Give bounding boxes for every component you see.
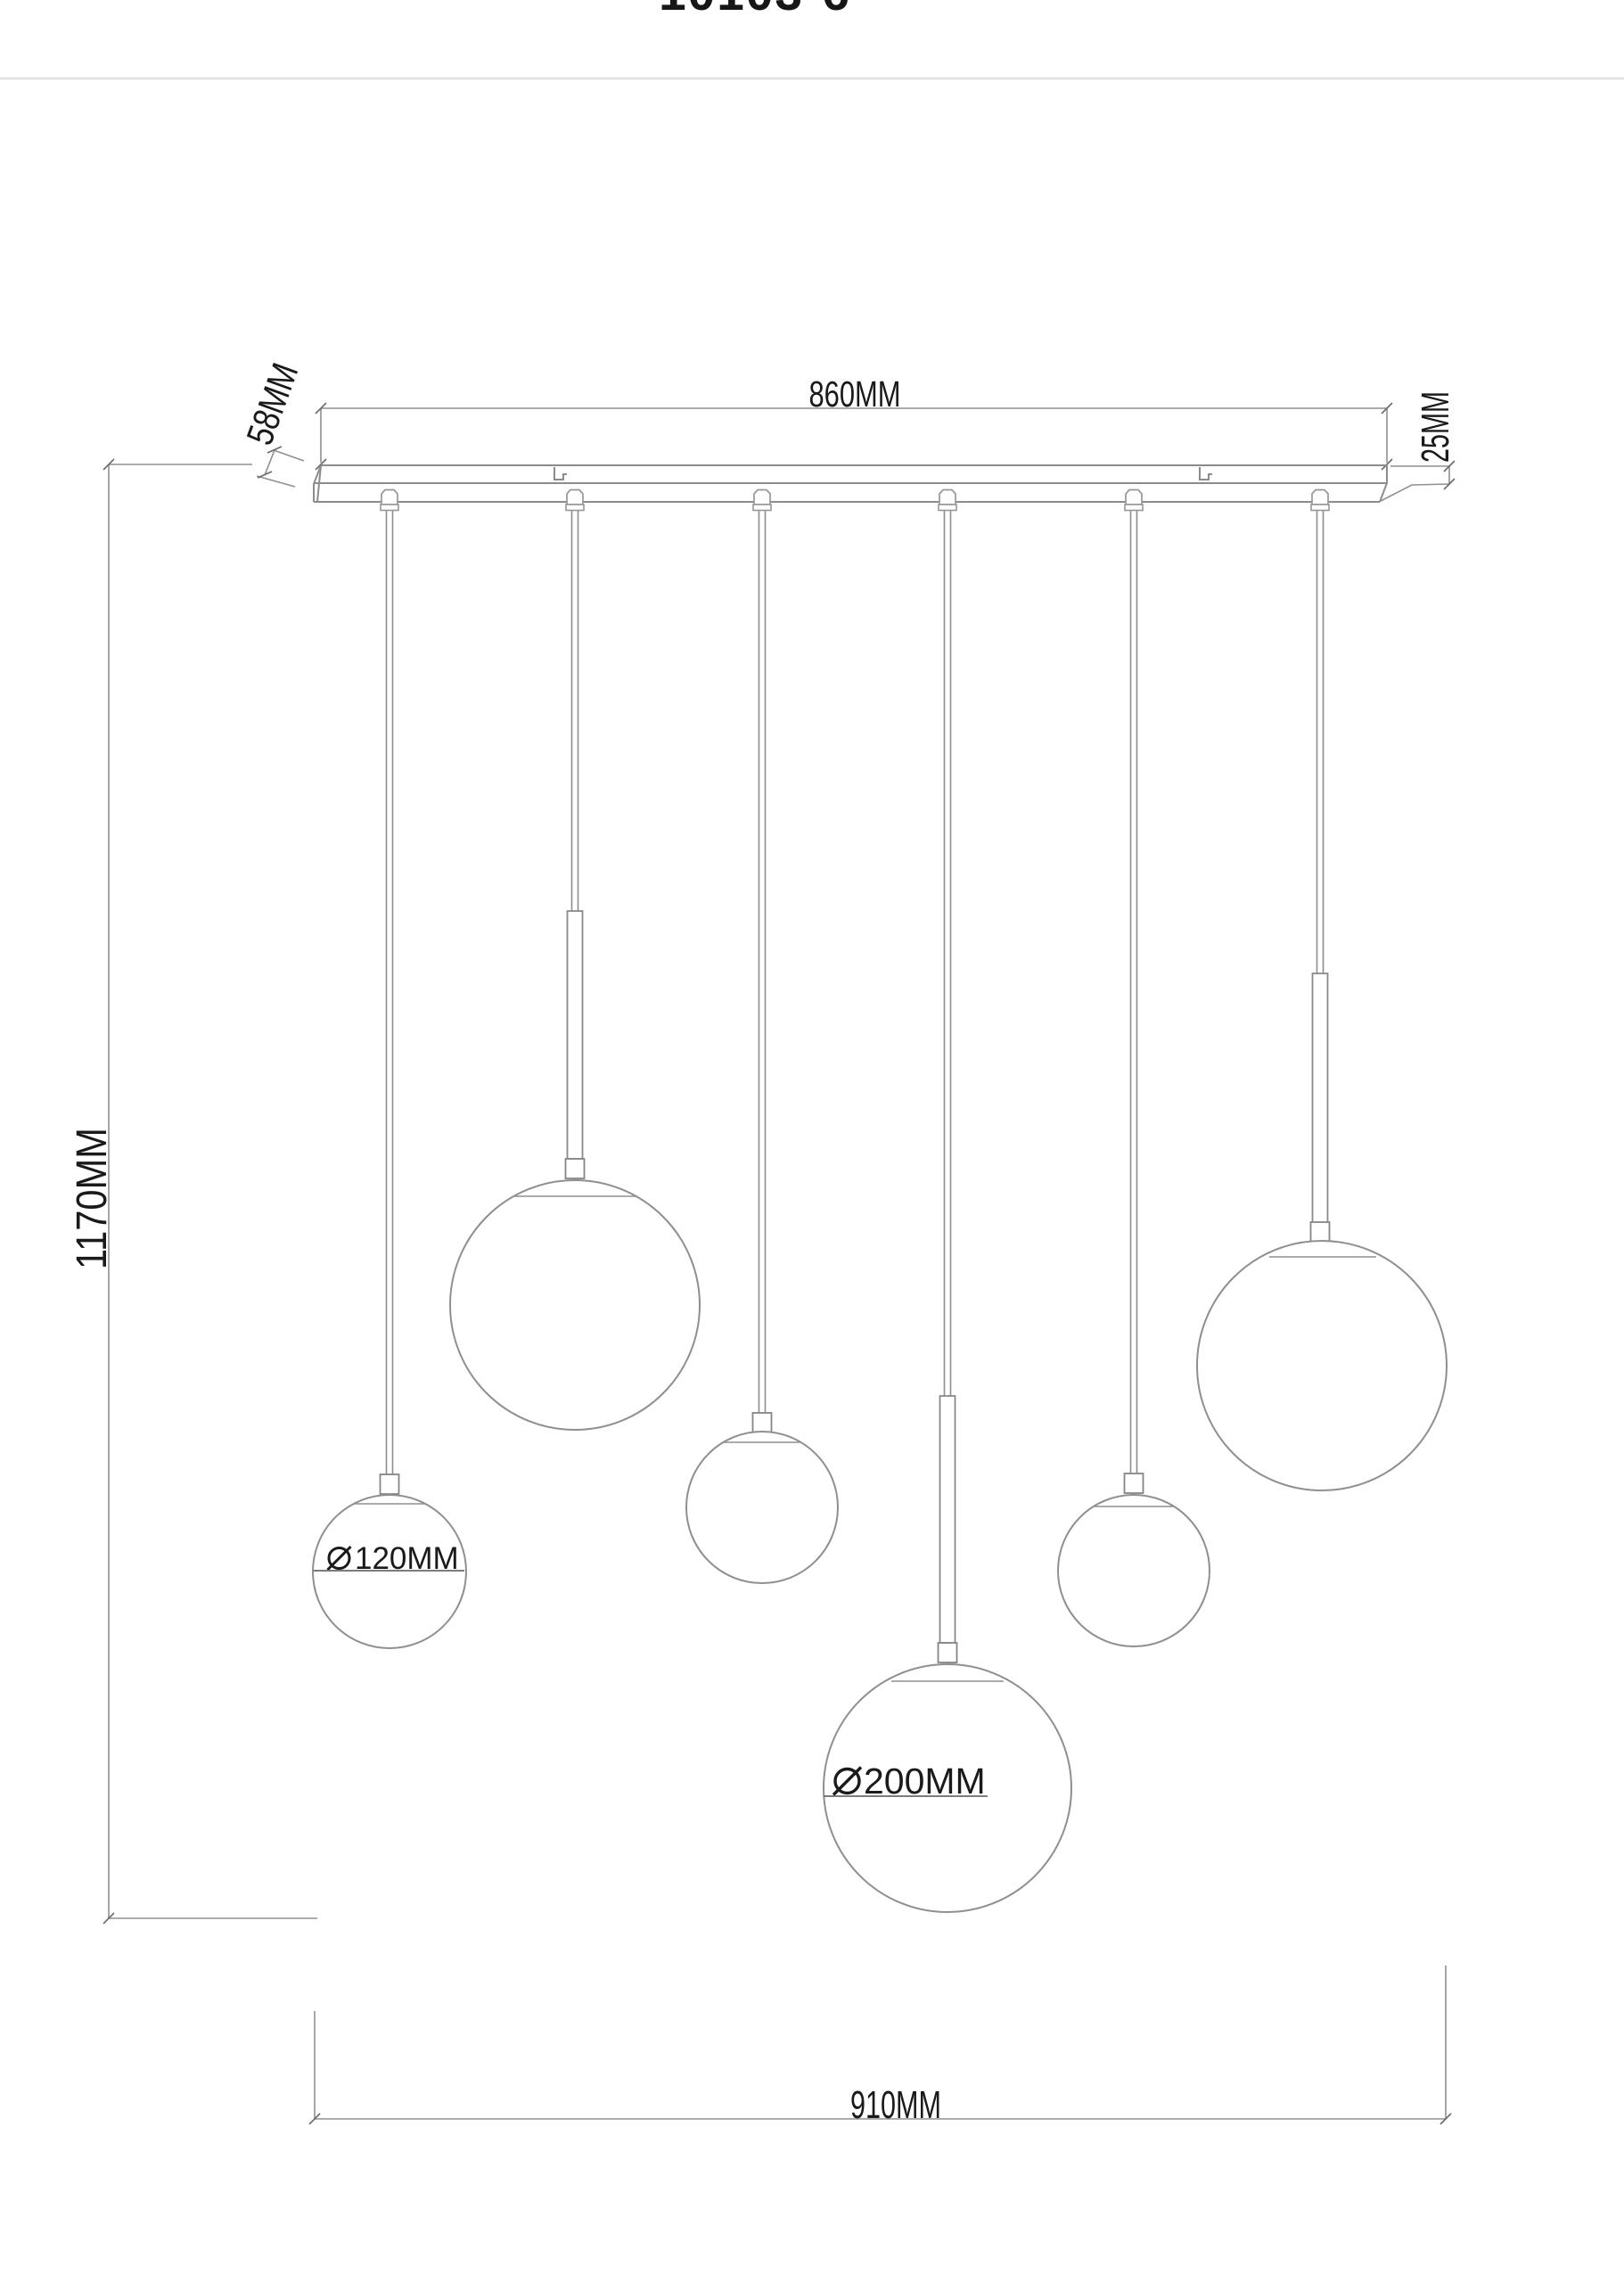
svg-text:10103-6: 10103-6 [659, 0, 851, 21]
svg-text:860MM: 860MM [808, 373, 900, 415]
svg-text:1170MM: 1170MM [67, 1128, 115, 1269]
svg-text:910MM: 910MM [850, 2084, 941, 2128]
svg-text:25MM: 25MM [1413, 391, 1457, 463]
